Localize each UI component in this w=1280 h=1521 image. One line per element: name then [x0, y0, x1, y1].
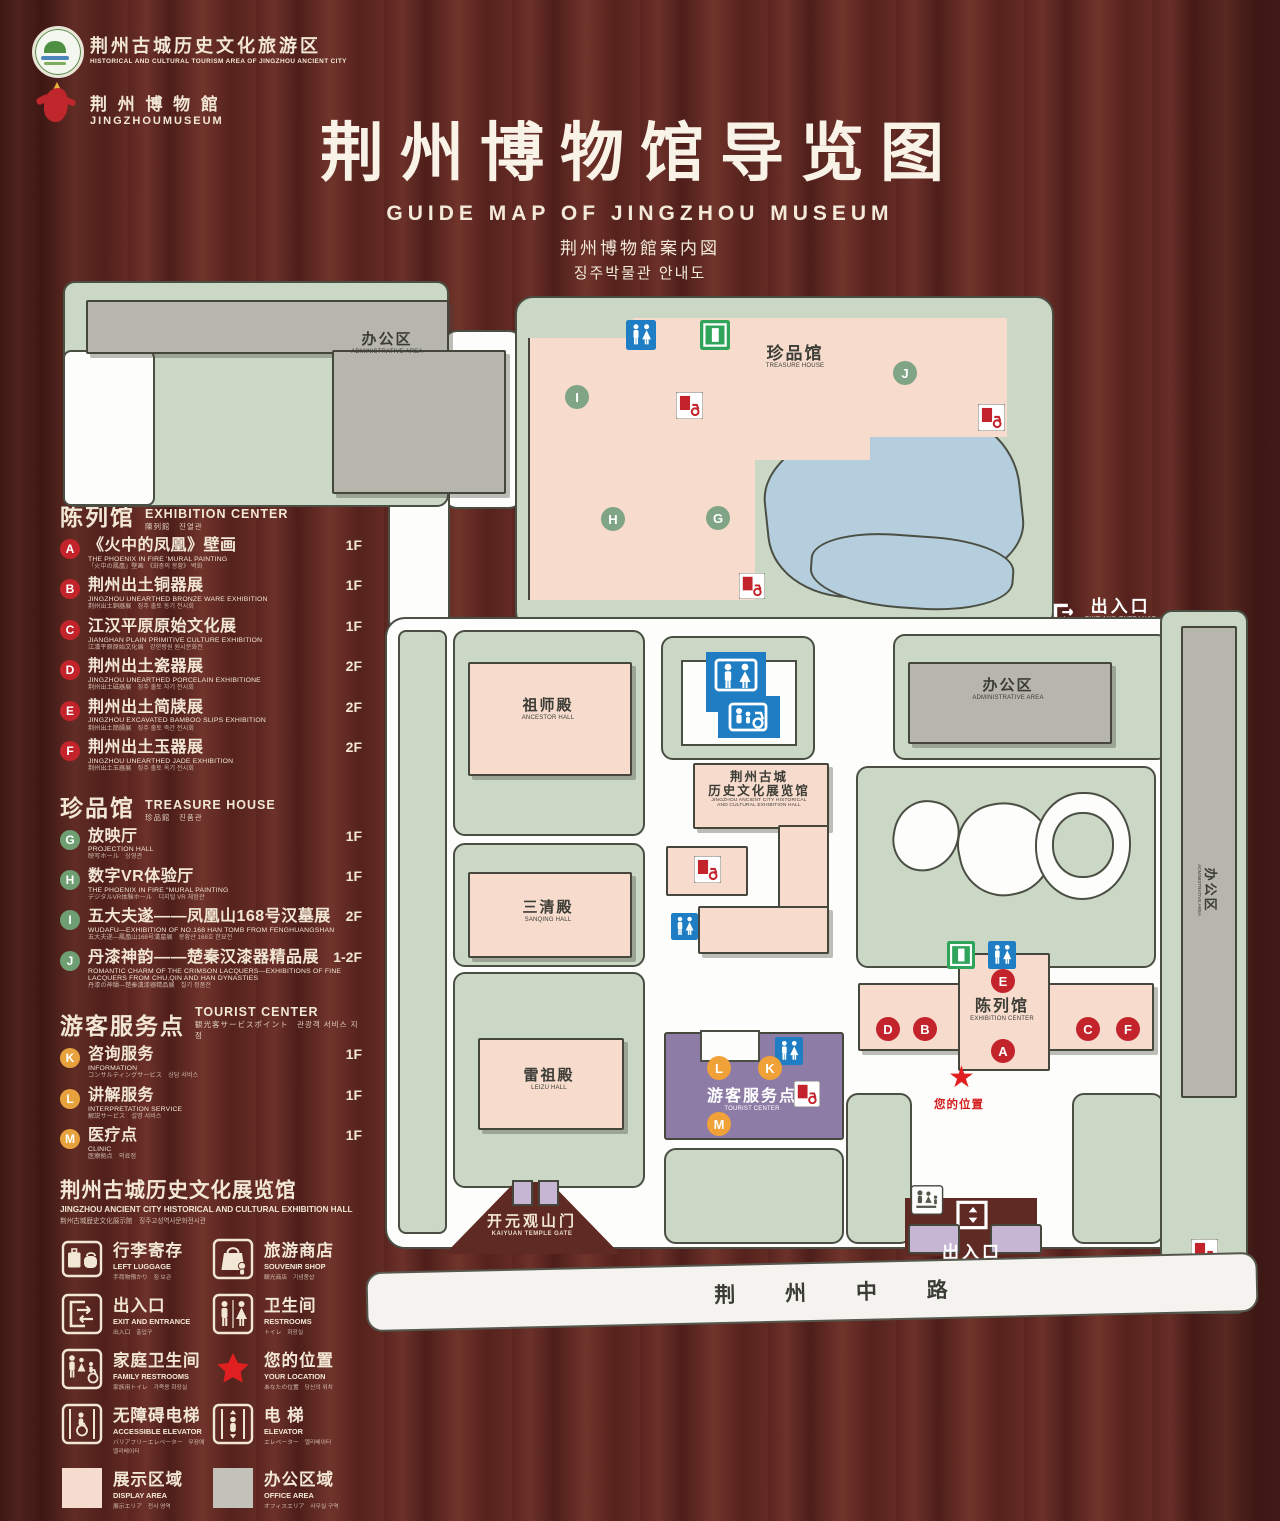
symbol-en: OFFICE AREA [264, 1491, 339, 1500]
exhibition-center-en: EXHIBITION CENTER [932, 1016, 1072, 1023]
map-marker-E: E [991, 969, 1015, 993]
ancestor-hall-en: ANCESTOR HALL [478, 715, 618, 722]
ancestor-hall-zh: 祖师殿 [478, 698, 618, 715]
restroom-icon [626, 320, 656, 355]
west-green-strip [398, 630, 447, 1234]
map-marker-C: C [1076, 1017, 1100, 1041]
accessible-elevator-icon [739, 573, 765, 604]
admin-nw-label: 办公区 ADMINISTRATIVE AREA [307, 332, 467, 356]
map-marker-J: J [893, 361, 917, 385]
hist-hall-zh2: 历史文化展览馆 [694, 784, 824, 798]
map-marker-L: L [707, 1056, 731, 1080]
campus-map: 办公区 ADMINISTRATIVE AREA 珍品馆 TREASURE HOU… [0, 0, 1280, 1451]
admin-building-e [908, 662, 1112, 744]
your-location-label: 您的位置 [934, 1096, 984, 1112]
exit-east-zh: 出入口 [1085, 598, 1156, 617]
accessible-elevator-icon [694, 856, 721, 888]
restroom-family-icon [706, 652, 780, 743]
hist-hall-en2: AND CULTURAL EXHIBITION HALL [694, 803, 824, 808]
tourist-center-notch [700, 1030, 760, 1062]
road-label: 荆 州 中 路 [654, 1273, 970, 1310]
green-block [664, 1148, 844, 1244]
symbol-zh: 办公区域 [264, 1466, 339, 1490]
admin-strip-label: 办公区 ADMINISTRATIVE AREA [1197, 830, 1217, 950]
map-marker-G: G [706, 506, 730, 530]
green-block [846, 1093, 912, 1244]
leizu-hall-label: 雷祖殿 LEIZU HALL [479, 1068, 619, 1092]
hist-hall-label: 荆州古城 历史文化展览馆 JINGZHOU ANCIENT CITY HISTO… [694, 770, 824, 809]
map-marker-B: B [913, 1017, 937, 1041]
leizu-hall-en: LEIZU HALL [479, 1085, 619, 1092]
admin-e-en: ADMINISTRATIVE AREA [928, 695, 1088, 702]
map-marker-K: K [758, 1056, 782, 1080]
symbol-zh: 展示区域 [113, 1466, 183, 1490]
symbol-sub: 展示エリア 전시 영역 [113, 1501, 183, 1510]
map-marker-I: I [565, 385, 589, 409]
treasure-house-label-zh: 珍品馆 [730, 344, 860, 363]
hist-hall-zh1: 荆州古城 [694, 770, 824, 784]
admin-building-nw-block [332, 350, 506, 494]
hist-hall-south-wing [698, 906, 829, 954]
exhibition-center-zh: 陈列馆 [932, 998, 1072, 1016]
accessible-elevator-icon [978, 404, 1005, 436]
map-marker-M: M [707, 1112, 731, 1136]
ancestor-hall-label: 祖师殿 ANCESTOR HALL [478, 698, 618, 722]
admin-nw-label-en: ADMINISTRATIVE AREA [307, 349, 467, 356]
symbol-en: DISPLAY AREA [113, 1491, 183, 1500]
kaiyuan-gate-zh: 开元观山门 [452, 1214, 612, 1231]
jingzhou-middle-road: 荆 州 中 路 [365, 1252, 1258, 1332]
your-location-star: ★ [948, 1063, 975, 1093]
swatch-gray-icon [211, 1466, 255, 1510]
sanqing-hall-label: 三清殿 SANQING HALL [478, 900, 618, 924]
map-marker-A: A [991, 1039, 1015, 1063]
sanqing-hall-zh: 三清殿 [478, 900, 618, 917]
kaiyuan-gate-label: 开元观山门 KAIYUAN TEMPLE GATE [452, 1214, 612, 1237]
treasure-house-label: 珍品馆 TREASURE HOUSE [730, 344, 860, 370]
elevator-arrows-icon [956, 1200, 988, 1235]
treasure-house-label-en: TREASURE HOUSE [730, 363, 860, 370]
leizu-hall-zh: 雷祖殿 [479, 1068, 619, 1085]
symbol-swatch-pink: 展示区域 DISPLAY AREA 展示エリア 전시 영역 [60, 1466, 211, 1510]
admin-strip-zh: 办公区 [1202, 830, 1217, 950]
symbol-swatch-gray: 办公区域 OFFICE AREA オフィスエリア 사무실 구역 [211, 1466, 362, 1510]
admin-strip-en: ADMINISTRATIVE AREA [1197, 830, 1202, 950]
map-marker-H: H [601, 507, 625, 531]
gate-pillar [512, 1180, 533, 1206]
family-restroom-icon [910, 1184, 944, 1221]
restroom-icon [671, 913, 698, 945]
path-nw [63, 350, 155, 506]
pond-island [1052, 812, 1114, 878]
exit-sign-icon [947, 941, 975, 974]
symbol-sub: オフィスエリア 사무실 구역 [264, 1501, 339, 1510]
gate-pillar [538, 1180, 559, 1206]
swatch-pink-icon [60, 1466, 104, 1510]
exhibition-center-label: 陈列馆 EXHIBITION CENTER [932, 998, 1072, 1023]
accessible-elevator-icon [794, 1081, 820, 1112]
kaiyuan-gate-en: KAIYUAN TEMPLE GATE [452, 1231, 612, 1238]
sanqing-hall-en: SANQING HALL [478, 917, 618, 924]
admin-nw-label-zh: 办公区 [307, 332, 467, 349]
green-block [1072, 1093, 1164, 1244]
admin-e-zh: 办公区 [928, 678, 1088, 695]
museum-guide-map-sign: { "header": { "tourism_logo": {"zh": "荆州… [0, 0, 1280, 1451]
map-marker-D: D [876, 1017, 900, 1041]
map-marker-F: F [1116, 1017, 1140, 1041]
admin-e-label: 办公区 ADMINISTRATIVE AREA [928, 678, 1088, 702]
exit-sign-icon [700, 320, 730, 355]
accessible-elevator-icon [676, 392, 703, 424]
